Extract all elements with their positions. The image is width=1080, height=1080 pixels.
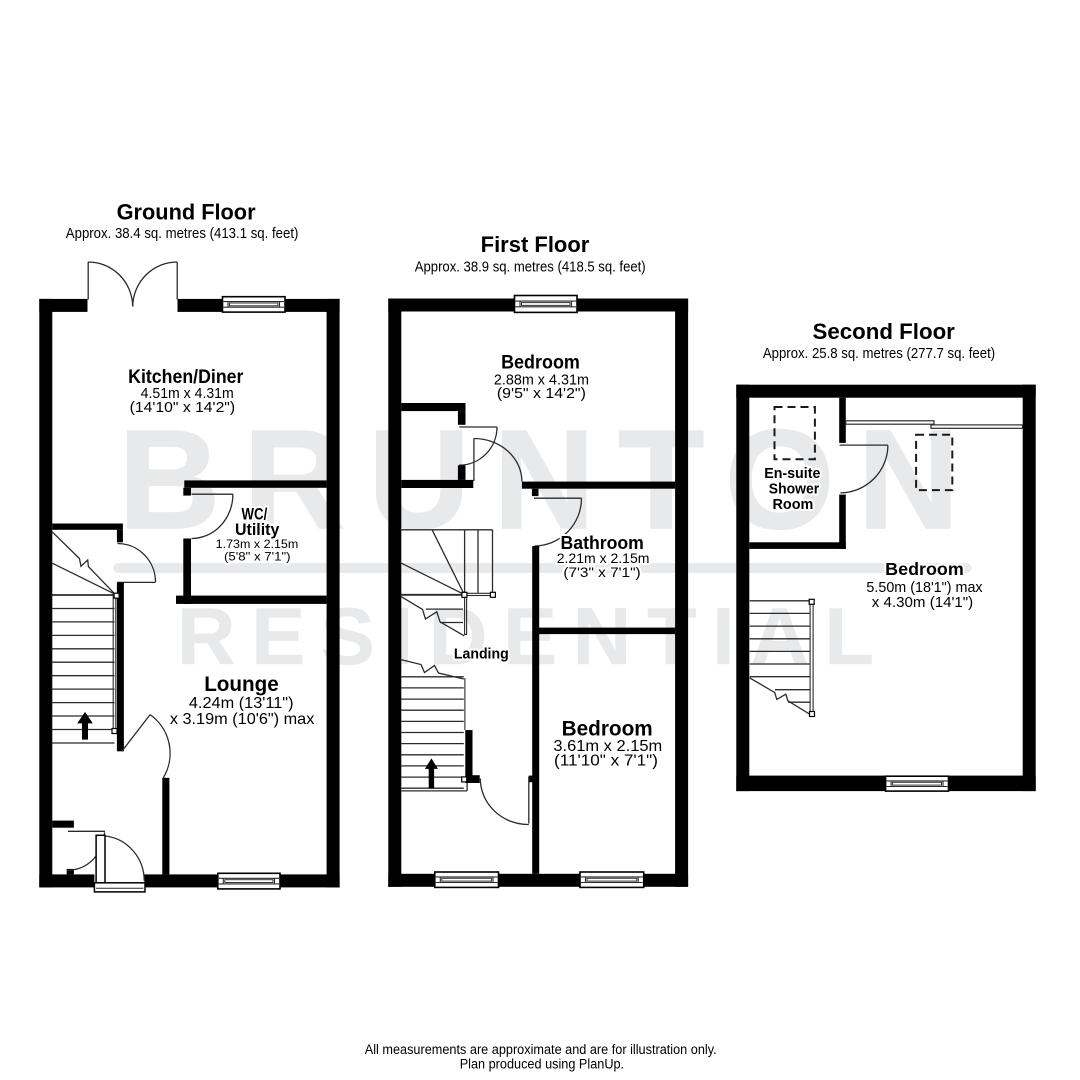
svg-text:x 3.19m (10'6") max: x 3.19m (10'6") max	[170, 711, 315, 728]
svg-text:En-suite: En-suite	[764, 465, 820, 482]
svg-text:Bedroom: Bedroom	[885, 559, 964, 579]
svg-text:(14'10" x 14'2"): (14'10" x 14'2")	[130, 400, 236, 416]
svg-text:4.24m (13'11"): 4.24m (13'11")	[189, 695, 294, 712]
svg-text:Kitchen/Diner: Kitchen/Diner	[128, 366, 244, 388]
svg-text:Approx. 25.8 sq. metres (277.7: Approx. 25.8 sq. metres (277.7 sq. feet)	[763, 346, 995, 362]
svg-text:(9'5" x 14'2"): (9'5" x 14'2")	[497, 386, 586, 402]
svg-text:(11'10" x 7'1"): (11'10" x 7'1")	[554, 753, 658, 770]
svg-text:All measurements are approxima: All measurements are approximate and are…	[365, 1042, 717, 1057]
svg-text:(5'8" x 7'1"): (5'8" x 7'1")	[224, 549, 291, 563]
svg-text:Plan produced using PlanUp.: Plan produced using PlanUp.	[460, 1056, 624, 1071]
svg-text:First Floor: First Floor	[481, 232, 590, 257]
svg-text:(7'3" x 7'1"): (7'3" x 7'1")	[563, 564, 640, 580]
svg-text:x 4.30m (14'1"): x 4.30m (14'1")	[872, 595, 973, 611]
svg-text:Approx. 38.9 sq. metres (418.5: Approx. 38.9 sq. metres (418.5 sq. feet)	[415, 259, 646, 275]
svg-text:Second Floor: Second Floor	[813, 319, 956, 344]
svg-text:Bedroom: Bedroom	[501, 352, 580, 374]
svg-text:5.50m (18'1") max: 5.50m (18'1") max	[866, 580, 983, 596]
svg-text:Room: Room	[773, 496, 814, 513]
svg-text:Lounge: Lounge	[204, 673, 279, 696]
svg-text:Landing: Landing	[454, 645, 509, 662]
svg-text:Ground Floor: Ground Floor	[117, 199, 256, 224]
svg-text:Approx. 38.4 sq. metres (413.1: Approx. 38.4 sq. metres (413.1 sq. feet)	[66, 226, 299, 242]
svg-text:RESIDENTIAL: RESIDENTIAL	[177, 592, 874, 682]
svg-text:Shower: Shower	[769, 480, 820, 497]
